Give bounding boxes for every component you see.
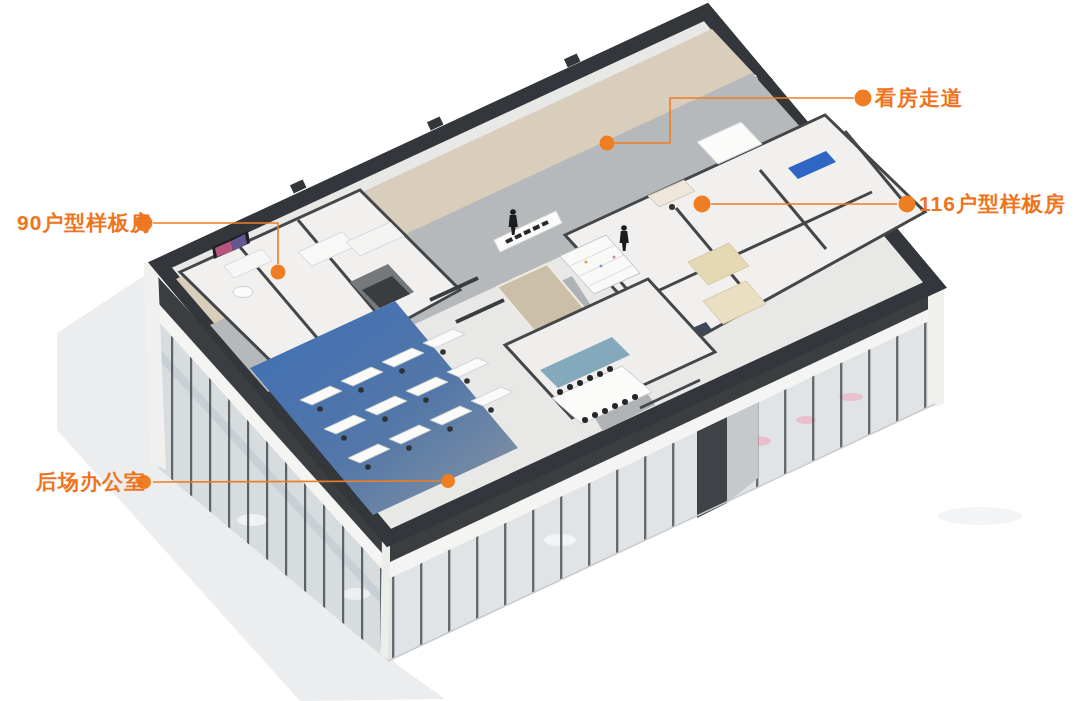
target-dot-back-office bbox=[441, 474, 455, 488]
label-dot-unit-116 bbox=[899, 196, 916, 213]
dining-chair bbox=[669, 204, 675, 210]
target-dot-unit-116 bbox=[694, 196, 711, 213]
label-dot-viewing-corridor bbox=[855, 90, 872, 107]
label-unit-116-model-room: 116户型样板房 bbox=[919, 193, 1066, 215]
label-unit-90-model-room: 90户型样板房 bbox=[17, 212, 152, 234]
target-dot-viewing-corridor bbox=[600, 136, 615, 151]
isometric-showroom-floor-rendering: 看房走道 116户型样板房 90户型样板房 后场办公室 bbox=[0, 0, 1080, 701]
target-dot-unit-90 bbox=[271, 265, 286, 280]
label-viewing-corridor: 看房走道 bbox=[875, 87, 963, 109]
coffee-table bbox=[233, 287, 253, 298]
label-back-office: 后场办公室 bbox=[36, 471, 146, 493]
